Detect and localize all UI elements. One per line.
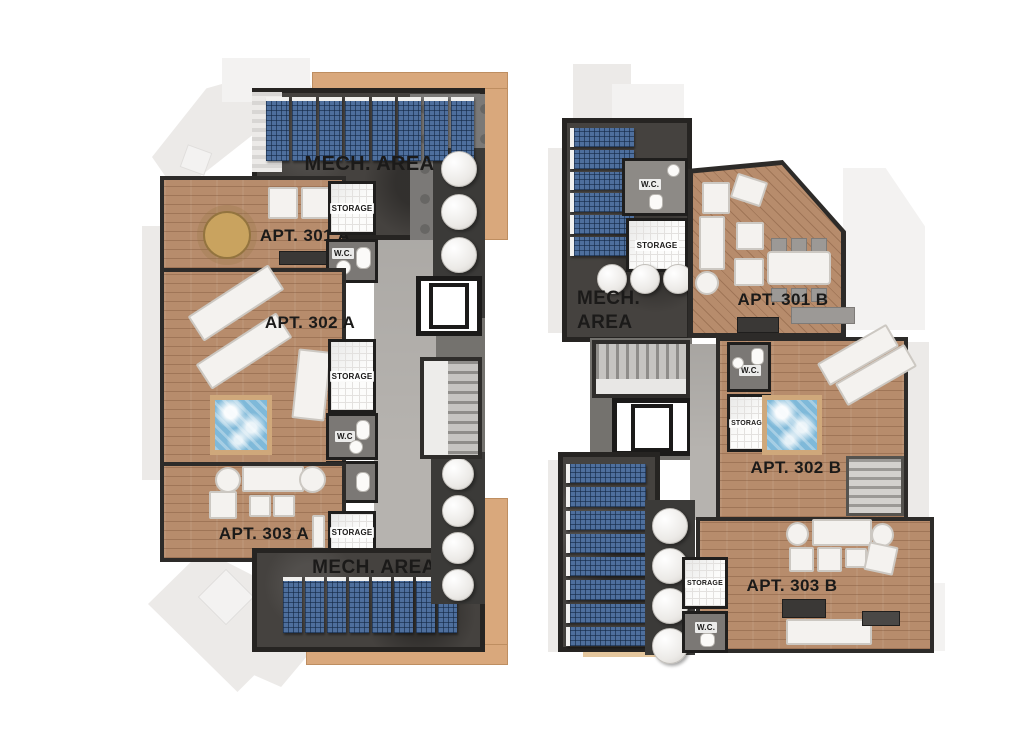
- round-side-table: [695, 271, 719, 295]
- staircase: [592, 340, 690, 398]
- counter-end: [862, 611, 900, 626]
- apartment-301b-label: APT. 301 B: [731, 291, 835, 309]
- storage-label: STORAGE: [685, 579, 725, 588]
- storage-room: STORAGE: [682, 557, 728, 609]
- wc-label: W.C.: [639, 179, 661, 190]
- round-side-table: [786, 522, 809, 546]
- apartment-302b-label: APT. 302 B: [742, 459, 850, 477]
- armchair: [734, 258, 764, 286]
- sofa: [812, 519, 872, 546]
- wc-room: W.C.: [682, 611, 728, 653]
- mech-area-label-line1: MECH.: [577, 289, 649, 309]
- sofa: [699, 216, 725, 270]
- sink: [732, 357, 744, 369]
- toilet: [700, 633, 715, 647]
- toilet: [751, 348, 764, 365]
- solar-panel: [566, 580, 646, 599]
- console-table: [737, 317, 779, 333]
- dining-chair: [811, 238, 827, 252]
- dining-table: [767, 251, 831, 285]
- solar-panel: [566, 534, 646, 553]
- solar-panel-column: [566, 464, 646, 646]
- armchair: [817, 547, 842, 572]
- solar-panel: [566, 464, 646, 483]
- ghost-terrace: [843, 168, 925, 330]
- solar-panel: [566, 627, 646, 646]
- hot-tub: [762, 395, 822, 455]
- ghost-outline: [612, 84, 684, 122]
- wc-label: W.C.: [695, 622, 717, 633]
- sink: [667, 164, 680, 177]
- dining-chair: [791, 238, 807, 252]
- kitchen-counter: [791, 307, 855, 324]
- armchair: [702, 182, 730, 214]
- armchair: [789, 547, 814, 572]
- internal-staircase: [846, 456, 904, 516]
- solar-panel: [566, 557, 646, 576]
- solar-panel: [566, 511, 646, 530]
- armchair: [863, 541, 898, 576]
- toilet: [649, 194, 663, 210]
- floor-plan-canvas: MECH. AREA APT. 301 A STORAGE W.C. APT. …: [0, 0, 1024, 732]
- water-tank: [652, 508, 688, 544]
- wc-room: W.C.: [727, 342, 771, 392]
- wc-room: W.C.: [622, 158, 688, 216]
- solar-panel: [566, 604, 646, 623]
- elevator-car: [631, 404, 673, 452]
- plan-b: W.C. STORAGE MECH. AREA: [0, 0, 1024, 732]
- solar-panel: [570, 128, 634, 147]
- mech-area-label-line2: AREA: [577, 313, 649, 333]
- dining-chair: [771, 238, 787, 252]
- solar-panel: [570, 215, 634, 234]
- desk: [782, 599, 826, 618]
- solar-panel: [570, 237, 634, 256]
- armchair: [736, 222, 764, 250]
- apartment-303b-label: APT. 303 B: [738, 577, 846, 595]
- solar-panel: [566, 487, 646, 506]
- corridor: [690, 344, 716, 520]
- storage-label: STORAGE: [635, 240, 680, 251]
- kitchen-counter: [786, 619, 872, 645]
